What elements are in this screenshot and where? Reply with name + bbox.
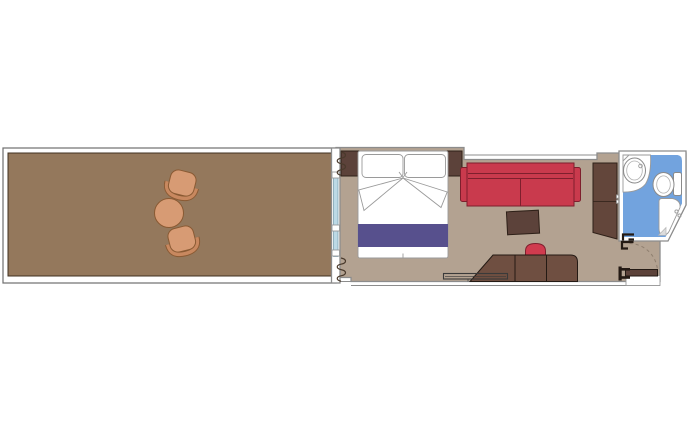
sliding-glass-door — [334, 175, 339, 257]
wardrobe — [593, 163, 621, 239]
balcony-round-table — [155, 199, 184, 228]
window-frame-tick — [332, 172, 340, 178]
wardrobe-body — [593, 163, 617, 239]
bed-area — [341, 151, 462, 258]
door-jamb-post — [619, 267, 622, 281]
bathroom — [619, 151, 686, 241]
entrance-landing — [626, 276, 660, 286]
toilet — [653, 173, 682, 197]
floor-plan-canvas — [0, 0, 700, 433]
pillow-right — [405, 155, 446, 178]
balcony — [3, 148, 336, 283]
coffee-table — [506, 210, 539, 235]
toilet-tank — [674, 173, 682, 196]
floor-plan — [0, 0, 700, 433]
window-frame-tick — [332, 250, 340, 256]
door-jamb-prong — [622, 276, 631, 279]
bed-runner — [358, 224, 448, 247]
entrance-door-leaf — [626, 270, 658, 277]
pillow-left — [362, 155, 403, 178]
window-frame-tick — [332, 225, 340, 231]
door-jamb-prong — [622, 268, 631, 271]
sofa — [461, 163, 581, 206]
